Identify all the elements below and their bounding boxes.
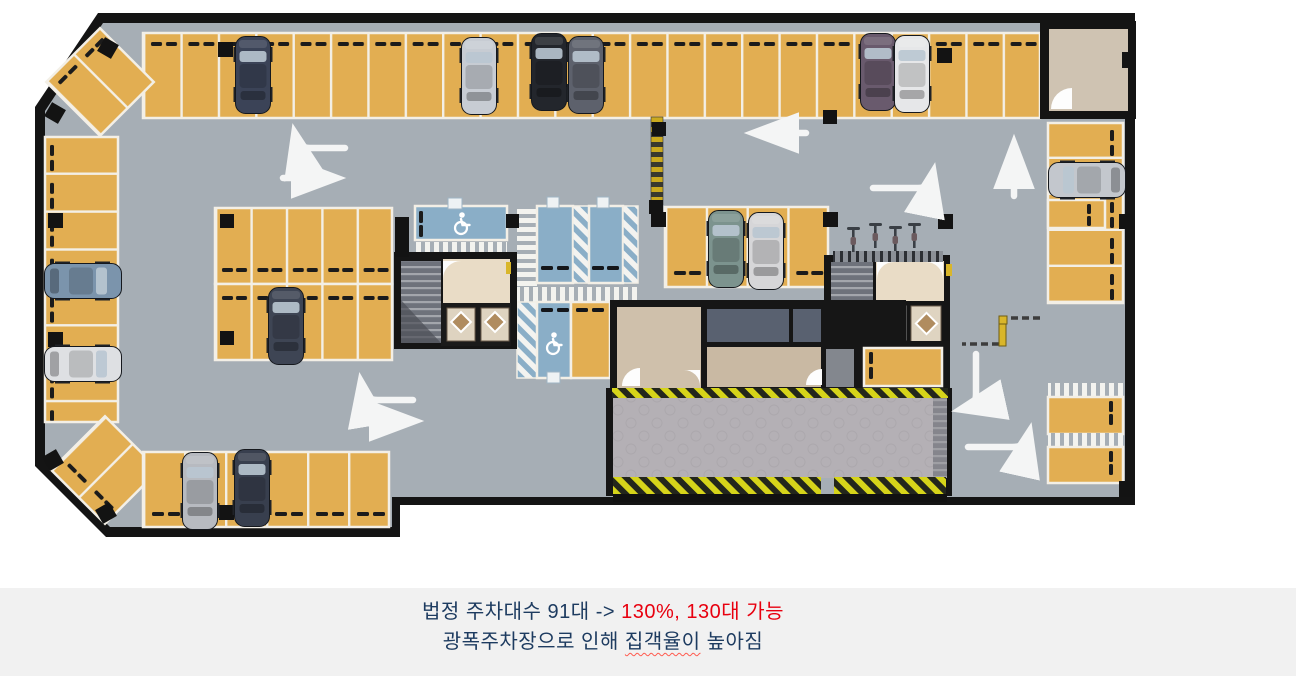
car — [707, 211, 746, 288]
car — [460, 38, 499, 115]
elevator-icon — [481, 308, 509, 341]
caption-line1-highlight: 130%, 130대 가능 — [621, 601, 784, 623]
hazard-stripe-bottom — [834, 477, 946, 496]
lobby — [876, 261, 944, 301]
car — [45, 345, 122, 384]
caption-line1-text: 법정 주차대수 91대 -> — [422, 601, 615, 623]
hazard-stripe-bottom — [613, 477, 821, 496]
caption-line2-underlined: 집객율이 — [625, 631, 701, 653]
car — [233, 450, 272, 527]
stall-group-bottom-right — [1048, 383, 1123, 483]
car — [1049, 161, 1126, 200]
elevator-icon — [911, 306, 941, 342]
stall-group-right-column — [1048, 123, 1123, 303]
car — [234, 37, 273, 114]
car — [567, 37, 606, 114]
room-dark — [707, 309, 789, 342]
car — [747, 213, 786, 290]
parking-floor-plan-svg — [0, 0, 1296, 588]
car — [45, 262, 122, 301]
caption-line2-suffix: 높아짐 — [707, 631, 764, 653]
corridor — [826, 349, 854, 387]
caption-line-2: 광폭주차장으로 인해 집객율이 높아짐 — [0, 627, 1251, 657]
single-stall — [864, 348, 942, 386]
service-rooms — [610, 300, 950, 395]
car — [530, 34, 569, 111]
floor-plan-image — [0, 0, 1296, 588]
elevator-icon — [447, 308, 475, 341]
caption-line2-text: 광폭주차장으로 인해 — [443, 631, 619, 653]
lobby — [443, 259, 510, 303]
hazard-stripe-top — [612, 388, 948, 398]
room-beige — [707, 347, 821, 387]
parking-plan-page: 법정 주차대수 91대 -> 130%, 130대 가능 광폭주차장으로 인해 … — [0, 0, 1296, 676]
car — [859, 34, 898, 111]
room-dark — [793, 309, 821, 342]
car — [181, 453, 220, 530]
car — [267, 288, 306, 365]
car — [893, 36, 932, 113]
caption-line-1: 법정 주차대수 91대 -> 130%, 130대 가능 — [0, 597, 1251, 627]
ramp-area — [606, 388, 952, 502]
storage-room — [1040, 21, 1136, 119]
caption-band: 법정 주차대수 91대 -> 130%, 130대 가능 광폭주차장으로 인해 … — [0, 588, 1296, 676]
